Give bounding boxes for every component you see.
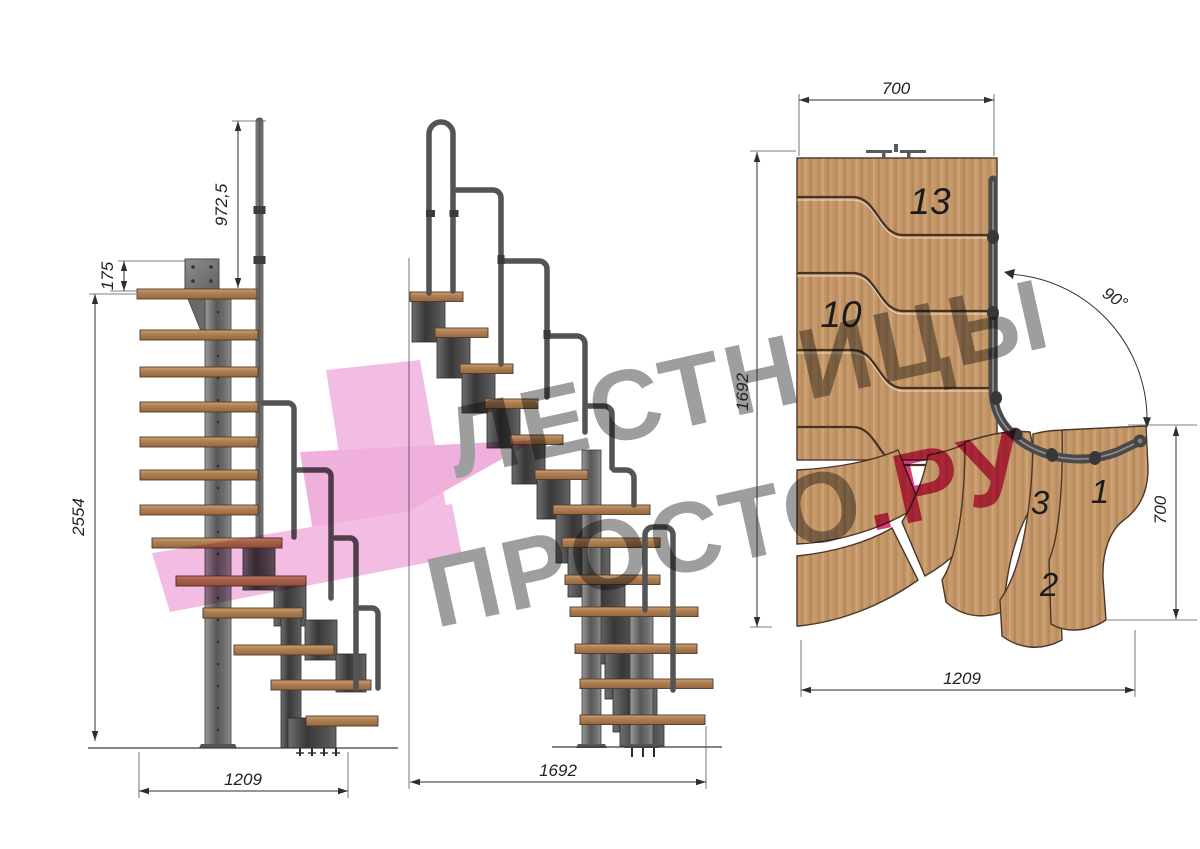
- step-label-1: 1: [1091, 473, 1109, 510]
- dim-plan-left-length: 1692: [733, 373, 752, 411]
- watermark-logo-shape: [152, 504, 462, 612]
- stair-drawing-canvas: 972,5 175 2554 1209: [0, 0, 1200, 849]
- dim-flight-length: 1692: [539, 761, 577, 780]
- mounting-plate: [185, 259, 219, 289]
- step-label-13: 13: [909, 181, 951, 222]
- step-label-2: 2: [1039, 566, 1058, 603]
- dim-plan-right-width: 700: [1151, 495, 1170, 524]
- rail-joint: [254, 256, 266, 264]
- rail-joint: [254, 206, 266, 214]
- dim-top-offset: 175: [98, 261, 117, 290]
- dim-footprint-width: 1209: [224, 770, 262, 789]
- wall-bracket: [866, 144, 926, 159]
- dim-handrail-height: 972,5: [212, 183, 231, 226]
- dim-plan-top-width: 700: [882, 79, 911, 98]
- stair-drawing: 972,5 175 2554 1209: [0, 0, 1200, 849]
- dim-turn-angle: 90°: [1099, 283, 1131, 313]
- central-column: [205, 299, 231, 748]
- dim-plan-bottom-length: 1209: [943, 669, 981, 688]
- support-column: [630, 612, 653, 745]
- dim-total-height: 2554: [69, 498, 88, 537]
